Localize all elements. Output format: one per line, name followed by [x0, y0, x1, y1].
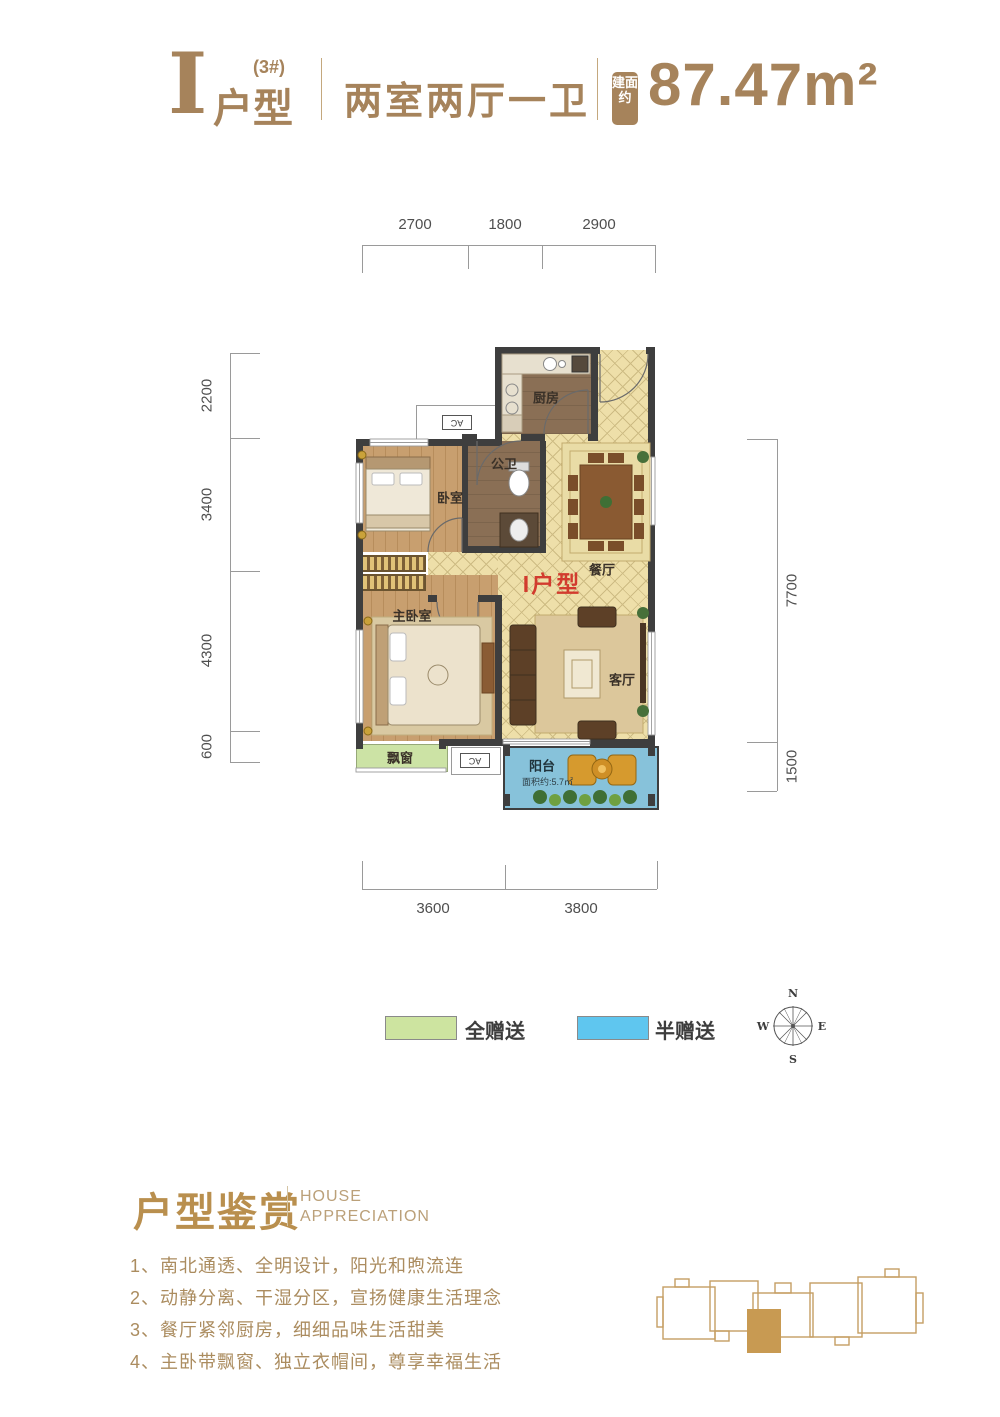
tick	[230, 571, 260, 572]
compass-n: N	[788, 987, 798, 1000]
label-bedroom2: 卧室	[437, 488, 463, 507]
header-divider	[321, 58, 322, 120]
tick	[655, 245, 656, 273]
dim-top-2: 1800	[479, 216, 531, 233]
dim-bottom-1: 3600	[407, 900, 459, 917]
label-dining: 餐厅	[589, 560, 615, 579]
area-badge: 建面约	[612, 72, 638, 125]
unit-tag: I户型	[523, 565, 581, 599]
tick	[362, 861, 363, 889]
tick	[230, 438, 260, 439]
dim-right-2: 1500	[784, 741, 801, 793]
dim-top-3: 2900	[573, 216, 625, 233]
unit-letter: I	[168, 42, 207, 126]
legend-label-full-gift: 全赠送	[465, 1015, 525, 1044]
tick	[230, 762, 260, 763]
dim-left-1: 2200	[199, 370, 216, 422]
building-key-plan	[655, 1253, 925, 1365]
tick	[747, 439, 777, 440]
label-living: 客厅	[609, 670, 635, 689]
highlighted-unit	[747, 1309, 781, 1353]
label-balcony: 阳台	[529, 756, 555, 775]
furniture	[358, 354, 650, 806]
tick	[657, 861, 658, 889]
legend-label-half-gift: 半赠送	[655, 1015, 715, 1044]
tick	[468, 245, 469, 269]
dim-left-2: 3400	[199, 479, 216, 531]
dim-right-1: 7700	[784, 565, 801, 617]
compass-w: W	[756, 1020, 770, 1033]
appreciation-subtitle-2: APPRECIATION	[300, 1208, 430, 1226]
dim-bottom-2: 3800	[555, 900, 607, 917]
layout-description: 两室两厅一卫	[344, 70, 590, 125]
label-balcony-area: 面积约:5.7㎡	[522, 775, 573, 788]
dim-left-3: 4300	[199, 625, 216, 677]
appreciation-item: 2、动静分离、干湿分区，宣扬健康生活理念	[130, 1284, 502, 1310]
dim-line-top	[362, 245, 656, 246]
tick	[230, 731, 260, 732]
header-divider	[597, 58, 598, 120]
label-bath: 公卫	[491, 454, 517, 473]
dim-left-4: 600	[199, 721, 216, 773]
label-kitchen: 厨房	[533, 388, 559, 407]
label-bay-window: 飘窗	[387, 748, 413, 767]
label-master: 主卧室	[392, 606, 431, 625]
compass: N S E W	[750, 985, 836, 1067]
appreciation-item: 1、南北通透、全明设计，阳光和煦流连	[130, 1252, 464, 1278]
appreciation-title: 户型鉴赏	[133, 1180, 301, 1238]
legend-swatch-half-gift	[577, 1016, 649, 1040]
compass-e: E	[818, 1020, 826, 1033]
dim-line-left	[230, 353, 231, 763]
floorplan: AC AC	[350, 345, 670, 815]
dim-line-right	[777, 439, 778, 791]
tick	[747, 742, 777, 743]
building-number: (3#)	[253, 57, 285, 78]
appreciation-item: 3、餐厅紧邻厨房，细细品味生活甜美	[130, 1316, 445, 1342]
floorplan-page: I (3#) 户型 两室两厅一卫 建面约 87.47m² 2700 1800 2…	[0, 0, 1000, 1417]
unit-word: 户型	[213, 76, 293, 134]
appreciation-divider	[287, 1186, 288, 1226]
appreciation-subtitle-1: HOUSE	[300, 1188, 362, 1206]
legend-swatch-full-gift	[385, 1016, 457, 1040]
appreciation-item: 4、主卧带飘窗、独立衣帽间，尊享幸福生活	[130, 1348, 502, 1374]
tick	[747, 791, 777, 792]
compass-s: S	[789, 1053, 797, 1066]
tick	[505, 865, 506, 889]
dim-top-1: 2700	[389, 216, 441, 233]
tick	[542, 245, 543, 269]
tick	[230, 353, 260, 354]
plan-structure	[350, 345, 670, 815]
tick	[362, 245, 363, 273]
area-value: 87.47m²	[648, 50, 878, 119]
dim-line-bottom	[362, 889, 657, 890]
